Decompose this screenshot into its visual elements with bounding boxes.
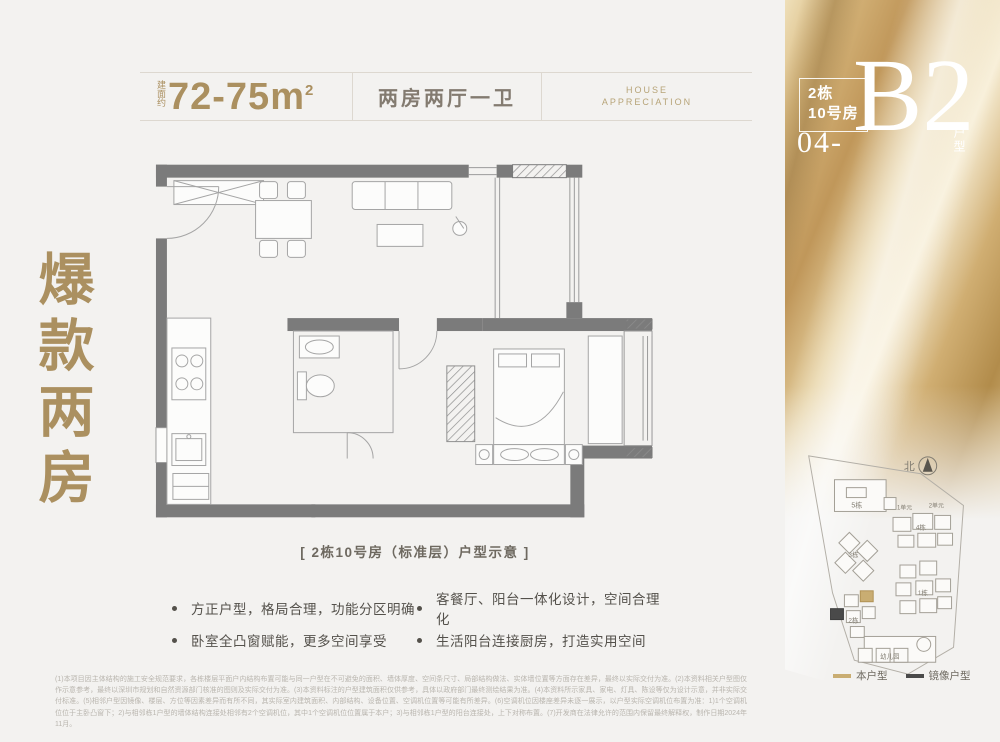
layout-column: 两房两厅一卫 xyxy=(352,73,542,120)
area-value: 72-75m2 xyxy=(168,78,314,116)
room-label: 10号房 xyxy=(808,104,859,124)
svg-text:4栋: 4栋 xyxy=(916,522,927,531)
wardrobe xyxy=(447,366,475,442)
feature-item: 客餐厅、阳台一体化设计，空间合理化 xyxy=(417,592,667,624)
area-superscript: 2 xyxy=(305,82,314,99)
svg-text:5栋: 5栋 xyxy=(851,500,862,509)
kitchen xyxy=(167,318,211,504)
building-3: 3栋 xyxy=(835,532,878,581)
feature-item: 方正户型，格局合理，功能分区明确 xyxy=(172,592,417,624)
brand-line-1: HOUSE xyxy=(626,85,668,96)
building-2: 2栋 xyxy=(831,591,876,638)
poster-page: 2栋 10号房 04- B2 户型 爆款两房 建面约 72-75m2 两房两厅一… xyxy=(0,0,1000,742)
mirror-unit-highlight xyxy=(831,609,844,620)
brand-column: HOUSE APPRECIATION xyxy=(542,73,752,120)
svg-text:3栋: 3栋 xyxy=(848,550,859,559)
feature-text: 卧室全凸窗赋能，更多空间享受 xyxy=(191,630,387,650)
svg-text:2栋: 2栋 xyxy=(848,616,859,625)
bullet-icon xyxy=(172,638,177,643)
legend-label: 本户型 xyxy=(856,668,888,683)
area-column: 建面约 72-75m2 xyxy=(140,73,352,120)
mirror-unit-swatch-icon xyxy=(906,674,924,678)
legend-label: 镜像户型 xyxy=(929,668,971,683)
this-unit-swatch-icon xyxy=(833,674,851,678)
area-prefix: 建面约 xyxy=(156,80,165,114)
building-4: 1单元 2单元 4栋 xyxy=(893,501,953,547)
feature-text: 客餐厅、阳台一体化设计，空间合理化 xyxy=(436,588,667,628)
bullet-icon xyxy=(417,606,422,611)
floorplan-drawing xyxy=(148,156,658,528)
vertical-headline: 爆款两房 xyxy=(34,250,90,514)
unit-code-suffix: 户型 xyxy=(951,126,968,154)
svg-text:1单元: 1单元 xyxy=(897,503,912,511)
svg-text:1栋: 1栋 xyxy=(918,588,929,597)
bathroom xyxy=(293,331,393,459)
bay-window-seat xyxy=(588,336,622,444)
disclaimer-text: (1)本项目因主体结构的施工安全规范要求，各栋楼层平面户内结构布置可能与同一户型… xyxy=(55,674,747,730)
kindergarten: 幼儿园 xyxy=(858,636,935,662)
feature-text: 方正户型，格局合理，功能分区明确 xyxy=(191,598,415,618)
feature-item: 生活阳台连接厨房，打造实用空间 xyxy=(417,624,667,656)
bedroom-door xyxy=(399,331,437,369)
north-indicator: 北 xyxy=(904,457,937,475)
building-5: 5栋 xyxy=(834,480,896,512)
feature-text: 生活阳台连接厨房，打造实用空间 xyxy=(436,630,646,650)
siteplan-legend: 本户型 镜像户型 xyxy=(833,668,971,683)
building-1: 1栋 xyxy=(896,561,952,614)
svg-text:北: 北 xyxy=(904,460,915,473)
svg-text:幼儿园: 幼儿园 xyxy=(880,651,899,660)
feature-item: 卧室全凸窗赋能，更多空间享受 xyxy=(172,624,417,656)
legend-this-unit: 本户型 xyxy=(833,668,888,683)
north-arrow-icon xyxy=(923,458,933,472)
siteplan-map: 北 5栋 5栋 1单元 2单元 4栋 3栋 xyxy=(796,444,996,692)
legend-mirror-unit: 镜像户型 xyxy=(906,668,971,683)
dining-set xyxy=(256,182,312,258)
bed xyxy=(476,349,583,465)
layout-label: 两房两厅一卫 xyxy=(378,82,516,111)
sofa-set xyxy=(352,182,467,247)
this-unit-highlight xyxy=(860,591,873,602)
unit-number: 04- xyxy=(797,126,843,160)
floorplan-caption: [ 2栋10号房（标准层）户型示意 ] xyxy=(250,541,580,561)
bullet-icon xyxy=(417,638,422,643)
brand-line-2: APPRECIATION xyxy=(602,97,692,108)
building-label: 2栋 xyxy=(808,84,859,104)
svg-text:2单元: 2单元 xyxy=(929,501,944,509)
bullet-icon xyxy=(172,606,177,611)
header-band: 建面约 72-75m2 两房两厅一卫 HOUSE APPRECIATION xyxy=(140,72,752,121)
feature-list: 方正户型，格局合理，功能分区明确 卧室全凸窗赋能，更多空间享受 客餐厅、阳台一体… xyxy=(172,592,652,656)
